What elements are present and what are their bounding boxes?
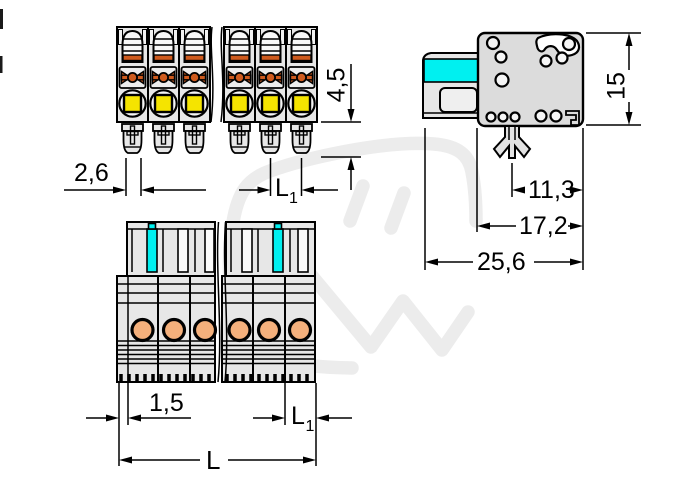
dimension-label-height: 15 bbox=[603, 72, 631, 100]
watermark-pin-left bbox=[350, 186, 363, 221]
dimension-edge-offset: 1,5 bbox=[86, 383, 191, 466]
dimension-label-top-pitch-sub: 1 bbox=[289, 190, 298, 207]
top-view bbox=[117, 27, 317, 153]
test-contact bbox=[259, 320, 280, 341]
dimension-front-pitch: L 1 bbox=[253, 383, 352, 466]
pole-top-view bbox=[148, 27, 179, 153]
dimension-height: 15 bbox=[586, 33, 641, 125]
dimension-label-edge-offset: 1,5 bbox=[149, 389, 184, 417]
dimension-label-pin-width: 2,6 bbox=[74, 159, 109, 187]
dimension-label-depth: 17,2 bbox=[519, 212, 568, 240]
break-line bbox=[211, 27, 223, 122]
technical-drawing-canvas: 2,6 L 1 4,5 15 11,3 17,2 25,6 bbox=[0, 0, 697, 496]
pole-top-view bbox=[117, 27, 148, 153]
dimension-pin-length: 4,5 bbox=[321, 64, 361, 190]
marking-stripe-side bbox=[424, 59, 478, 82]
dimension-label-total-depth: 25,6 bbox=[477, 248, 526, 276]
pole-top-view bbox=[286, 27, 317, 153]
pole-top-view bbox=[224, 27, 255, 153]
wire-entry-detail bbox=[440, 88, 477, 112]
test-contact bbox=[290, 320, 311, 341]
test-contact bbox=[195, 320, 216, 341]
page-edge-marks bbox=[0, 9, 3, 73]
front-view bbox=[117, 222, 315, 382]
front-upper-left bbox=[127, 222, 215, 276]
test-contact bbox=[164, 320, 185, 341]
dimension-label-foot-offset: 11,3 bbox=[528, 176, 575, 204]
snap-in-foot bbox=[494, 126, 530, 158]
dimension-label-total-length: L bbox=[206, 445, 220, 475]
dimension-label-pin-length: 4,5 bbox=[323, 68, 351, 103]
dimension-total-length: L bbox=[119, 445, 316, 475]
pole-top-view bbox=[255, 27, 286, 153]
dimension-label-top-pitch: L bbox=[275, 174, 289, 202]
dimension-pin-width: 2,6 bbox=[64, 158, 206, 196]
test-contact bbox=[132, 320, 153, 341]
dimension-label-front-pitch: L bbox=[291, 402, 305, 430]
watermark-mouth bbox=[301, 263, 468, 350]
dimension-label-front-pitch-sub: 1 bbox=[306, 418, 315, 435]
pole-top-view bbox=[179, 27, 210, 153]
watermark-pin-right bbox=[391, 193, 404, 228]
test-contact bbox=[229, 320, 250, 341]
